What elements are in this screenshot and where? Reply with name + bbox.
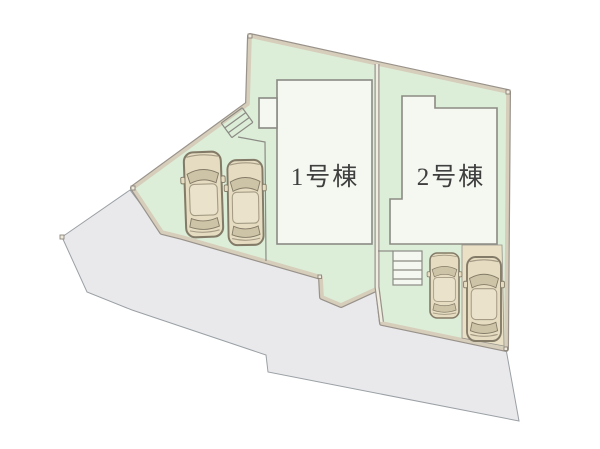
car-lot1-right <box>224 160 267 246</box>
site-plan-svg: 1号棟 2号棟 <box>0 0 600 449</box>
building-2-label: 2号棟 <box>417 163 486 191</box>
site-plan-image: 1号棟 2号棟 <box>0 0 600 449</box>
building-1-footprint <box>277 80 372 244</box>
car-lot2-right <box>464 257 505 341</box>
building-2: 2号棟 <box>390 96 497 244</box>
building-1-porch <box>259 98 277 128</box>
car-lot1-left <box>180 151 227 237</box>
building-1-label: 1号棟 <box>291 163 360 191</box>
car-lot2-left <box>427 253 462 318</box>
